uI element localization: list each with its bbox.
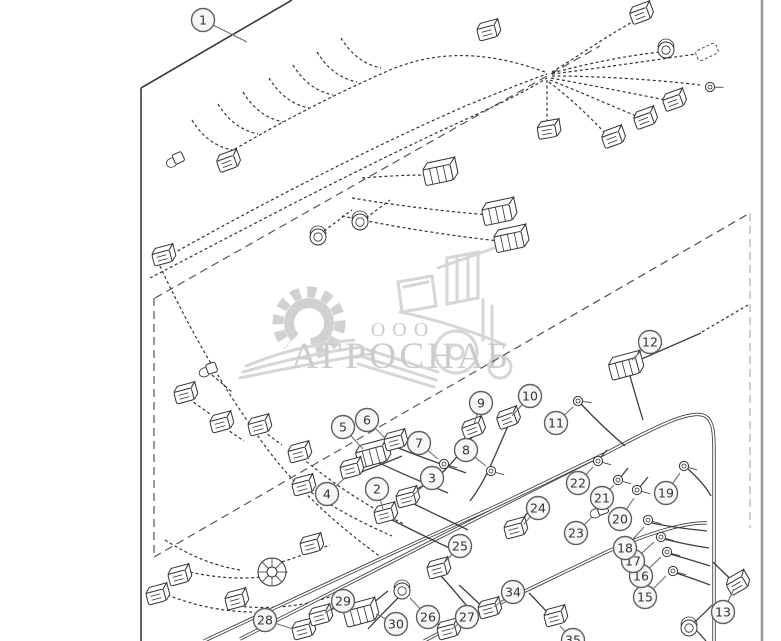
callout-leader xyxy=(336,477,346,486)
callout-28: 28 xyxy=(254,609,294,632)
callout-11: 11 xyxy=(545,407,574,435)
harness-wire-dashed xyxy=(552,76,700,85)
connector-round xyxy=(681,617,697,636)
callout-leader xyxy=(276,624,293,629)
callout-number: 25 xyxy=(452,538,468,553)
callout-number: 7 xyxy=(415,435,423,450)
connector-module xyxy=(480,197,518,226)
callout-1: 1 xyxy=(192,9,248,43)
harness-wire-dashed xyxy=(189,399,210,414)
callout-35: 35 xyxy=(560,626,585,641)
connector-conn xyxy=(382,429,409,451)
callout-24: 24 xyxy=(524,497,550,525)
connector-conn xyxy=(475,19,502,41)
connector-conn xyxy=(372,502,399,524)
connector-conn xyxy=(600,125,627,149)
callout-30: 30 xyxy=(376,613,408,636)
border-top-diagonal xyxy=(141,0,292,88)
harness-wire-dashed xyxy=(263,431,282,445)
callout-number: 15 xyxy=(637,589,653,604)
callout-number: 22 xyxy=(570,475,586,490)
connector-conn xyxy=(632,106,659,130)
harness-wire-dashed xyxy=(192,120,232,150)
callout-number: 28 xyxy=(257,612,273,627)
harness-wire-dashed xyxy=(324,210,352,231)
callout-number: 27 xyxy=(459,609,475,624)
callout-number: 29 xyxy=(335,593,351,608)
harness-wire xyxy=(410,502,468,530)
harness-wire-dashed xyxy=(293,65,333,95)
harness-wire-dashed xyxy=(366,200,390,218)
harness-wire xyxy=(670,554,710,566)
connector-conn xyxy=(144,583,171,605)
callout-number: 1 xyxy=(199,12,207,27)
connector-ring xyxy=(667,563,686,580)
connector-conn xyxy=(307,604,334,626)
harness-wire xyxy=(664,539,709,548)
harness-wire-dashed xyxy=(269,78,309,108)
connector-conn xyxy=(246,414,273,436)
harness-wire-dashed xyxy=(317,52,357,82)
connector-ghost xyxy=(695,42,720,61)
parts-diagram: ОООАГРОСНАБ12345678910111213151617181920… xyxy=(0,0,781,641)
harness-wire-dashed xyxy=(212,375,232,392)
callout-leader xyxy=(610,485,614,490)
callout-number: 9 xyxy=(477,395,485,410)
connector-module xyxy=(607,350,646,380)
harness-wire-dashed xyxy=(158,74,547,262)
callout-number: 3 xyxy=(428,470,436,485)
connector-module xyxy=(492,224,530,253)
connector-conn xyxy=(215,149,242,173)
callout-number: 8 xyxy=(462,442,470,457)
callout-23: 23 xyxy=(565,517,593,545)
callout-26: 26 xyxy=(410,598,440,629)
callout-12: 12 xyxy=(632,331,662,361)
callout-number: 26 xyxy=(420,609,436,624)
callout-21: 21 xyxy=(591,485,615,510)
connector-clip xyxy=(197,362,218,379)
callout-number: 10 xyxy=(522,388,538,403)
callout-number: 13 xyxy=(715,604,731,619)
connector-clip xyxy=(164,151,185,169)
connector-round xyxy=(310,226,326,245)
harness-wire-dashed xyxy=(550,80,636,116)
callout-leader xyxy=(564,407,573,415)
callout-leader xyxy=(642,542,654,553)
harness-wire xyxy=(581,404,625,446)
callout-number: 30 xyxy=(388,616,404,631)
callout-leader xyxy=(475,457,486,466)
callout-19: 19 xyxy=(655,473,681,505)
harness-wire-dashed xyxy=(702,305,748,332)
callout-number: 4 xyxy=(323,486,331,501)
connector-conn xyxy=(502,517,529,539)
connector-round xyxy=(658,39,674,58)
connector-ring xyxy=(642,512,661,529)
connector-ring xyxy=(485,463,504,480)
callout-3: 3 xyxy=(411,467,444,498)
callout-10: 10 xyxy=(512,385,542,417)
callout-8: 8 xyxy=(455,439,487,467)
callout-leader xyxy=(428,450,438,459)
connector-module xyxy=(421,157,459,186)
connector-ring xyxy=(572,392,592,411)
connector-conn xyxy=(425,557,452,579)
callout-number: 24 xyxy=(530,500,546,515)
harness-wire xyxy=(470,426,508,501)
callout-number: 11 xyxy=(548,415,564,430)
harness-wire xyxy=(676,573,710,585)
callout-number: 18 xyxy=(617,540,633,555)
callouts: 1234567891011121315161718192021222324252… xyxy=(192,9,735,641)
callout-number: 2 xyxy=(373,481,381,496)
connector-round xyxy=(394,580,410,599)
harness-wire-dashed xyxy=(352,198,490,215)
harness-wire-dashed xyxy=(218,104,258,134)
callout-27: 27 xyxy=(452,606,479,630)
connector-conn xyxy=(661,88,688,112)
callout-7: 7 xyxy=(408,432,439,460)
callout-number: 21 xyxy=(594,490,610,505)
connector-conn xyxy=(298,533,325,555)
callout-6: 6 xyxy=(356,409,386,439)
connector-conn xyxy=(542,605,569,627)
connector-conn xyxy=(628,1,655,25)
callout-leader xyxy=(560,626,565,632)
harness-wire-dashed xyxy=(243,92,283,122)
connector-conn xyxy=(724,569,752,595)
connector-biground xyxy=(258,558,286,586)
harness-wire-dashed xyxy=(341,38,381,68)
connector-ring xyxy=(661,544,680,561)
callout-leader xyxy=(584,517,592,525)
connector-conn xyxy=(172,382,199,404)
harness-wire xyxy=(630,376,643,420)
callout-number: 35 xyxy=(565,632,581,641)
callout-number: 19 xyxy=(658,485,674,500)
harness-diagram-svg: ОООАГРОСНАБ12345678910111213151617181920… xyxy=(0,0,781,641)
callout-4: 4 xyxy=(316,477,347,506)
callout-leader xyxy=(410,598,420,609)
connector-conn xyxy=(394,486,421,508)
connector-ring xyxy=(704,77,724,96)
connector-conn xyxy=(338,457,365,479)
callout-leader xyxy=(653,576,666,589)
connector-conn xyxy=(476,597,503,619)
harness-wire-dashed xyxy=(225,428,244,441)
harness-wire-dashed xyxy=(165,540,240,570)
connector-conn xyxy=(286,441,313,463)
callout-number: 6 xyxy=(363,412,371,427)
harness-wire-dashed xyxy=(552,20,636,72)
connector-conn xyxy=(460,416,487,440)
callout-leader xyxy=(586,467,593,475)
connector-conn xyxy=(208,411,235,433)
callout-leader xyxy=(649,557,661,568)
callout-number: 34 xyxy=(505,584,521,599)
callout-number: 12 xyxy=(642,334,658,349)
connector-conn xyxy=(536,119,562,140)
watermark: ОООАГРОСНАБ xyxy=(240,246,511,392)
connector-conn xyxy=(166,564,193,586)
harness-wire-dashed xyxy=(150,78,547,278)
connector-conn xyxy=(150,244,177,266)
connector-ring xyxy=(612,472,631,489)
connector-round xyxy=(352,211,368,230)
callout-number: 20 xyxy=(612,511,628,526)
harness-wire-dashed xyxy=(551,78,666,100)
callout-number: 23 xyxy=(568,525,584,540)
callout-leader xyxy=(375,428,385,438)
connector-ring xyxy=(678,458,697,475)
connector-conn xyxy=(290,474,317,496)
harness-wire xyxy=(688,469,711,496)
callout-leader xyxy=(626,498,634,509)
callout-34: 34 xyxy=(494,581,525,608)
callout-number: 5 xyxy=(339,419,347,434)
watermark-text-name: АГРОСНАБ xyxy=(291,336,511,377)
callout-25: 25 xyxy=(443,535,472,565)
connector-ring xyxy=(631,482,650,499)
harness-wire xyxy=(697,631,706,641)
callout-leader xyxy=(673,473,680,484)
callout-leader xyxy=(213,25,247,42)
